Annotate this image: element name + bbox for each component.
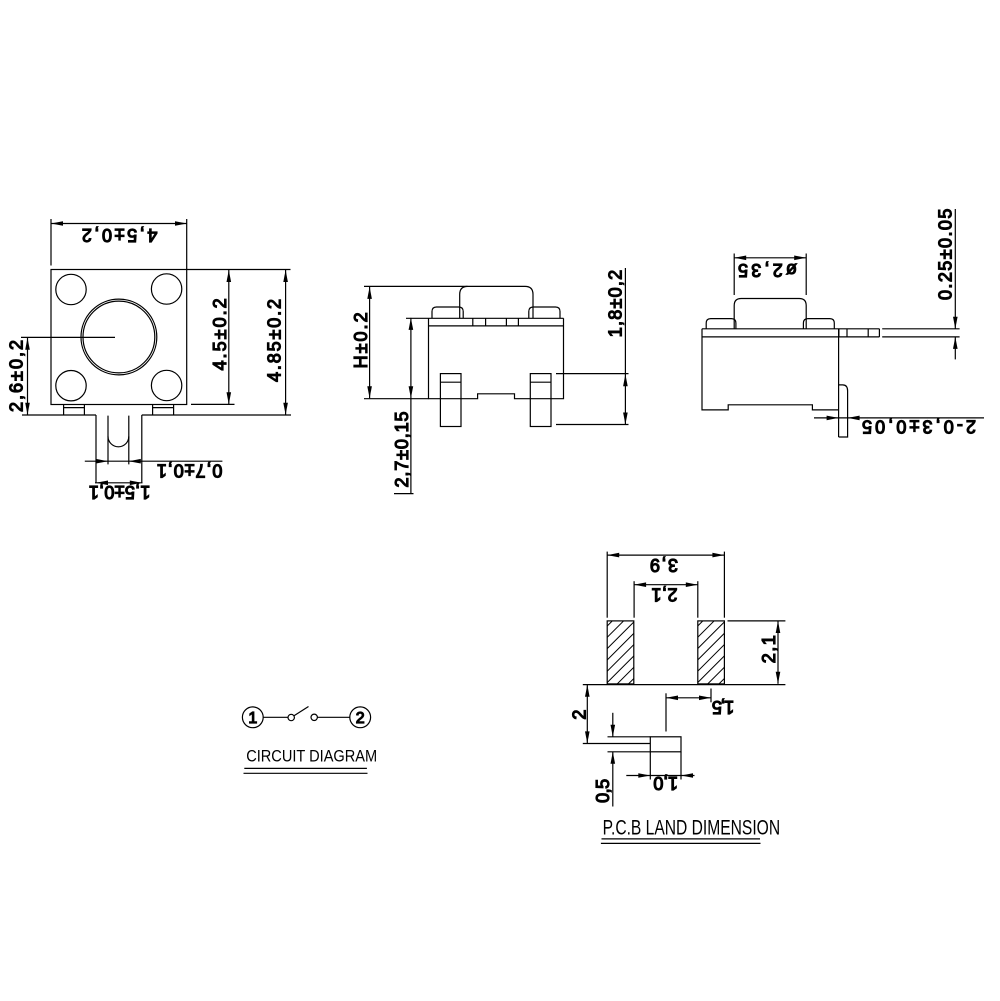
svg-text:2,1: 2,1 [759,635,779,663]
svg-text:1,8±0,2: 1,8±0,2 [606,270,626,337]
svg-text:1,5±0,1: 1,5±0,1 [89,482,151,502]
svg-text:2-0,3±0,05: 2-0,3±0,05 [862,417,976,437]
svg-text:1,0: 1,0 [653,773,678,793]
svg-text:2: 2 [356,710,365,727]
svg-text:0,7±0,1: 0,7±0,1 [157,460,223,480]
svg-text:4,5±0,2: 4,5±0,2 [82,225,158,245]
svg-text:1,5: 1,5 [712,697,734,717]
svg-text:H±0.2: H±0.2 [351,312,371,368]
svg-text:P.C.B LAND DIMENSION: P.C.B LAND DIMENSION [603,815,781,839]
svg-text:CIRCUIT DIAGRAM: CIRCUIT DIAGRAM [246,747,377,766]
svg-text:2: 2 [570,710,590,720]
svg-text:0.25±0.05: 0.25±0.05 [936,209,956,300]
svg-text:1: 1 [248,710,257,727]
svg-text:3,9: 3,9 [650,555,678,575]
svg-text:2,6±0,2: 2,6±0,2 [7,340,27,412]
svg-text:2,7±0,15: 2,7±0,15 [392,412,412,488]
svg-text:0,5: 0,5 [593,779,613,803]
svg-text:2,1: 2,1 [652,585,678,605]
svg-text:4.85±0.2: 4.85±0.2 [265,299,285,382]
svg-text:4.5±0.2: 4.5±0.2 [210,298,230,370]
svg-text:ø2,35: ø2,35 [738,260,797,280]
